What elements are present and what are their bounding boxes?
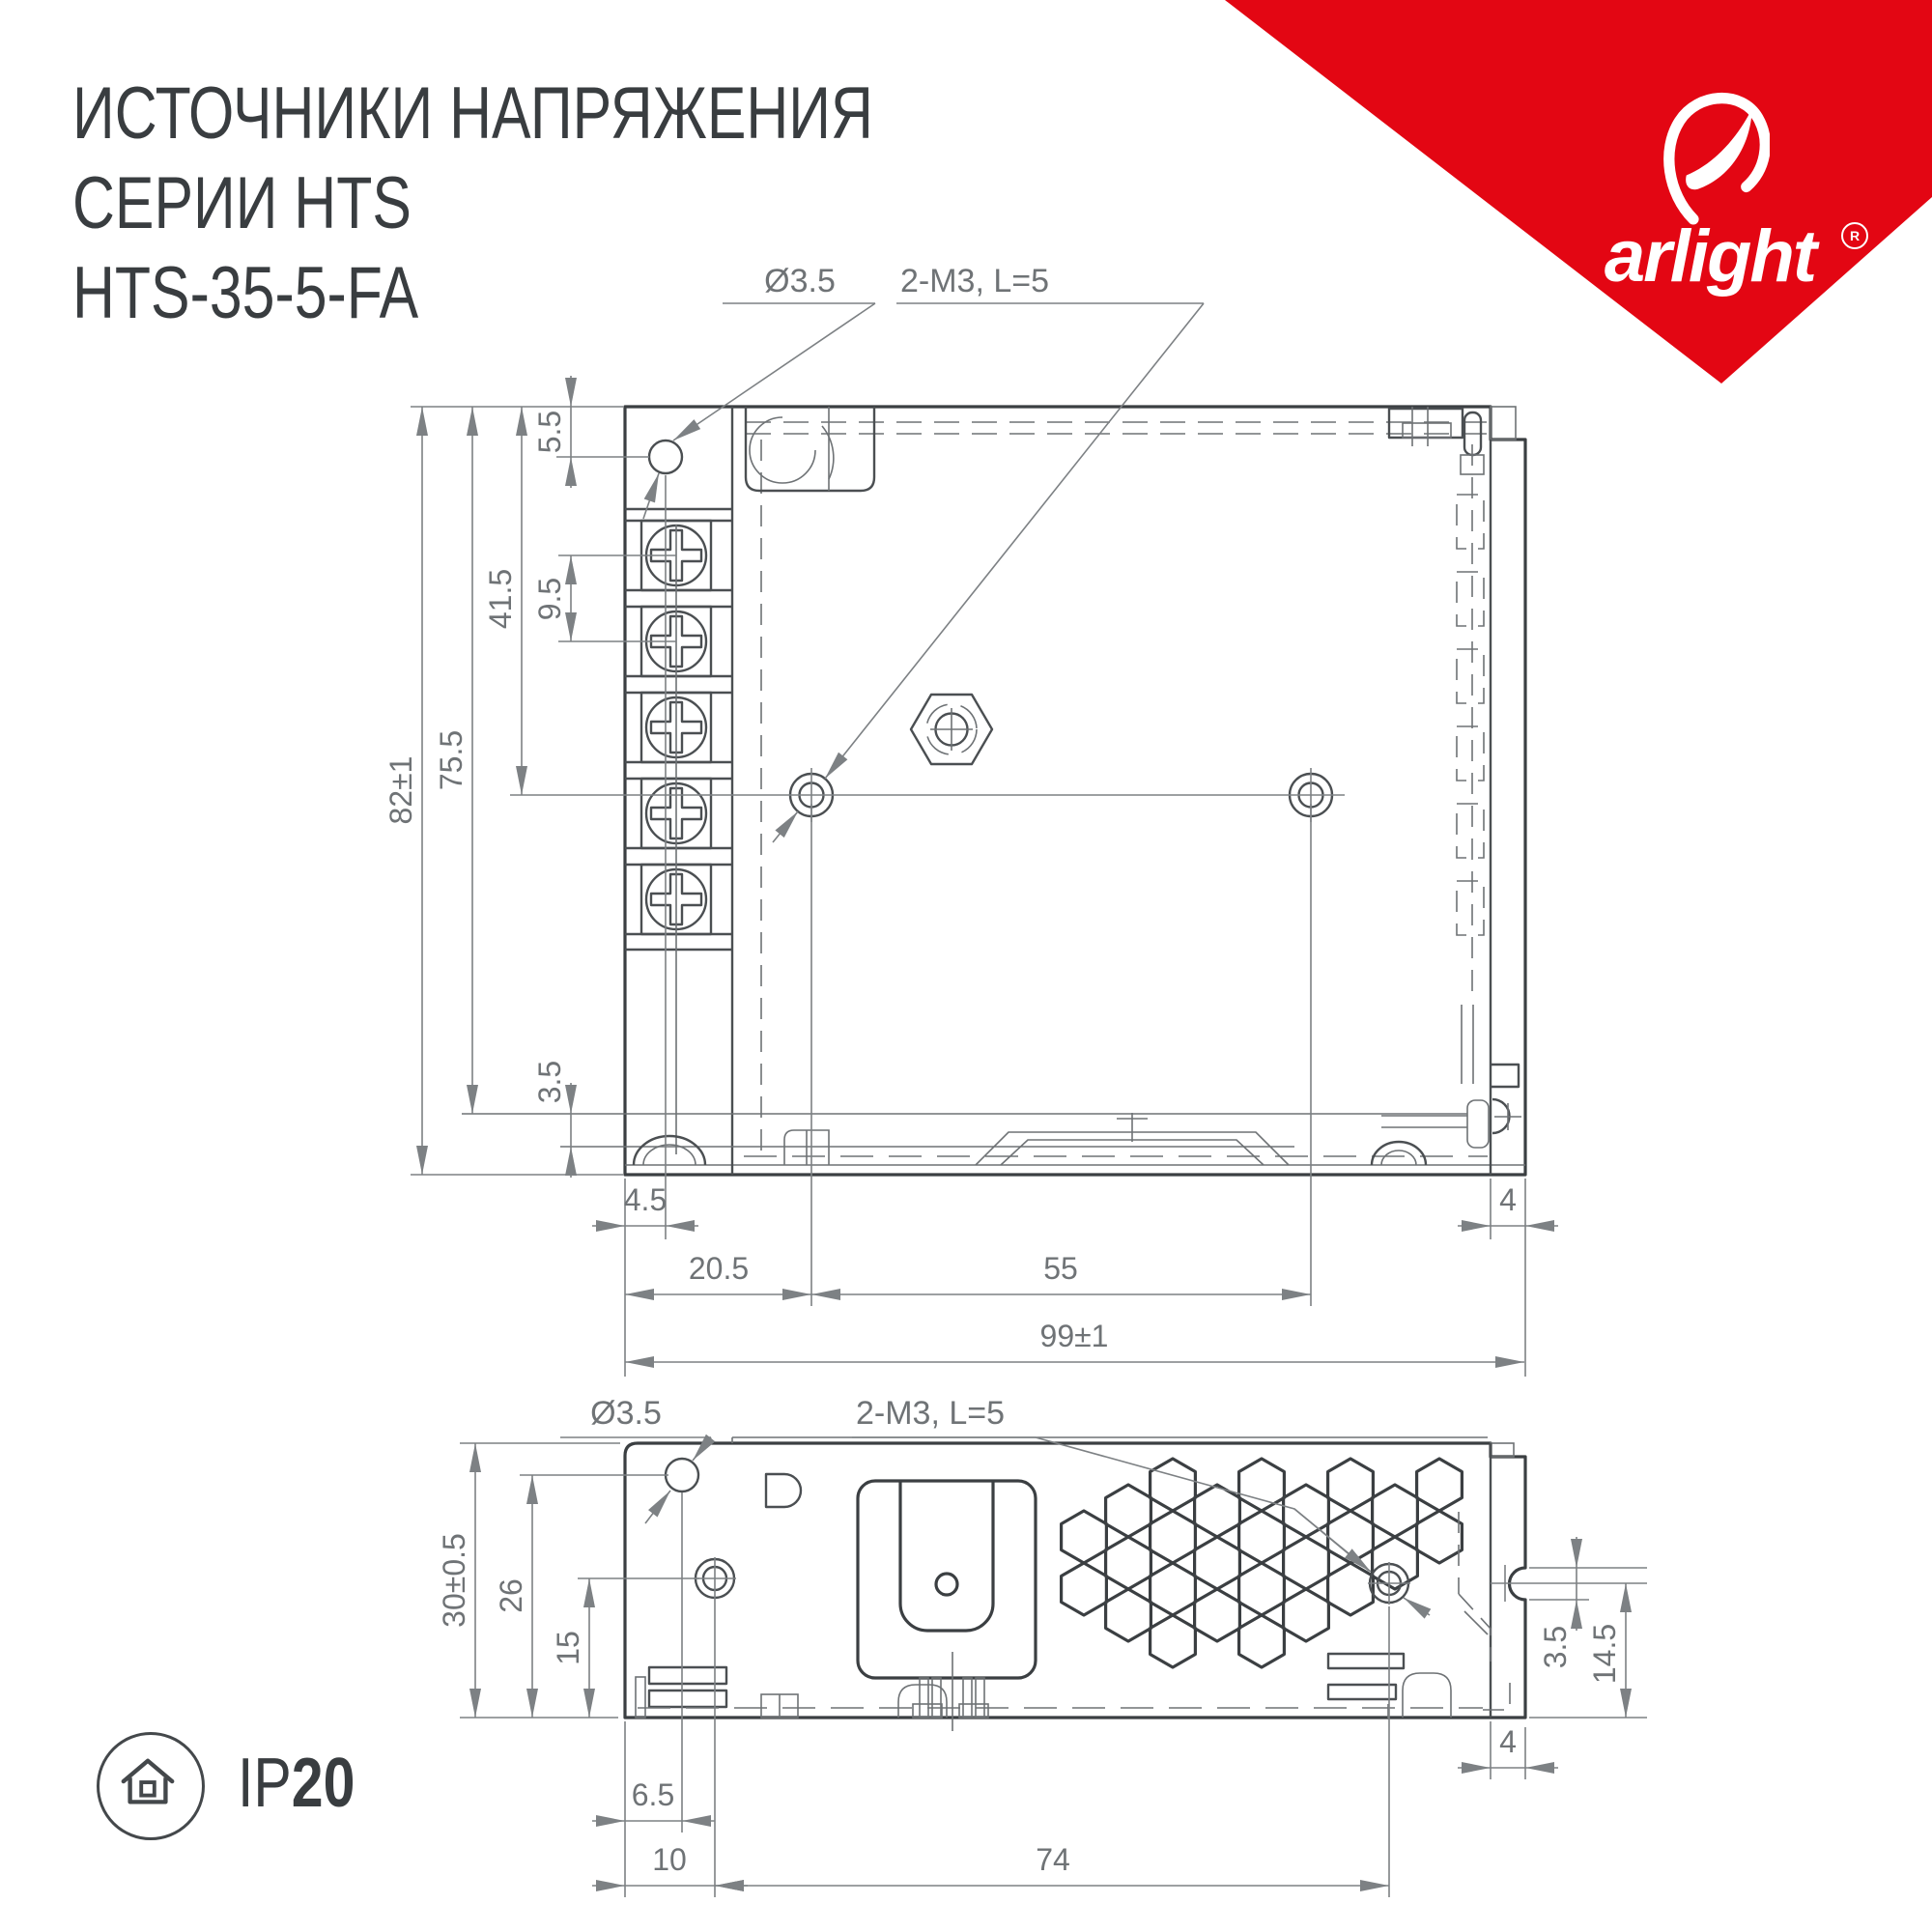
- top-view-drawing: [462, 407, 1525, 1306]
- side-stud-left: [694, 1557, 736, 1600]
- callout-screws-side: 2-M3, L=5: [856, 1395, 1005, 1432]
- honeycomb-vents: [1062, 1459, 1463, 1667]
- dim-mount-spacing: 55: [1043, 1251, 1078, 1286]
- dim-side-height: 30±0.5: [437, 1533, 471, 1628]
- dim-base-lip: 3.5: [532, 1061, 567, 1103]
- top-view-dimensions: 82±1 75.5 41.5 5.5 9.5 3.5 4.5: [384, 263, 1558, 1377]
- dim-width: 99±1: [1040, 1319, 1109, 1353]
- dim-edge-to-hole: 6.5: [632, 1777, 674, 1812]
- dim-top-to-base: 75.5: [434, 730, 469, 790]
- dim-flange-top: 4: [1499, 1182, 1517, 1217]
- dim-hole-height: 26: [494, 1578, 528, 1613]
- dim-top-to-mount: 41.5: [483, 569, 518, 629]
- relay-block: [858, 1481, 1036, 1731]
- dim-height: 82±1: [384, 756, 418, 825]
- callout-hole-top: Ø3.5: [764, 263, 836, 299]
- dim-side-flange: 4: [1499, 1724, 1517, 1759]
- dim-notch-height: 14.5: [1587, 1624, 1622, 1684]
- dim-screw-pitch: 9.5: [532, 578, 567, 620]
- dim-stud-spacing: 74: [1036, 1842, 1070, 1877]
- hex-nut: [911, 695, 992, 764]
- callout-screws-top: 2-M3, L=5: [900, 263, 1049, 299]
- dim-edge-to-hole-v: 5.5: [532, 411, 567, 453]
- vent-slots: [1457, 495, 1484, 935]
- side-view-drawing: [625, 1437, 1647, 1731]
- page: ИСТОЧНИКИ НАПРЯЖЕНИЯ СЕРИИ HTS HTS-35-5-…: [0, 0, 1932, 1932]
- callout-hole-side: Ø3.5: [590, 1395, 662, 1432]
- dim-edge-to-mount: 20.5: [689, 1251, 749, 1286]
- dim-notch: 3.5: [1538, 1626, 1573, 1668]
- technical-drawing: 82±1 75.5 41.5 5.5 9.5 3.5 4.5: [0, 0, 1932, 1932]
- dim-stud-height: 15: [551, 1631, 585, 1665]
- dim-edge-to-hole-h: 4.5: [624, 1182, 667, 1217]
- dim-edge-to-stud: 10: [652, 1842, 687, 1877]
- side-view-dimensions: 30±0.5 26 15 3.5 14.5 4: [437, 1395, 1647, 1897]
